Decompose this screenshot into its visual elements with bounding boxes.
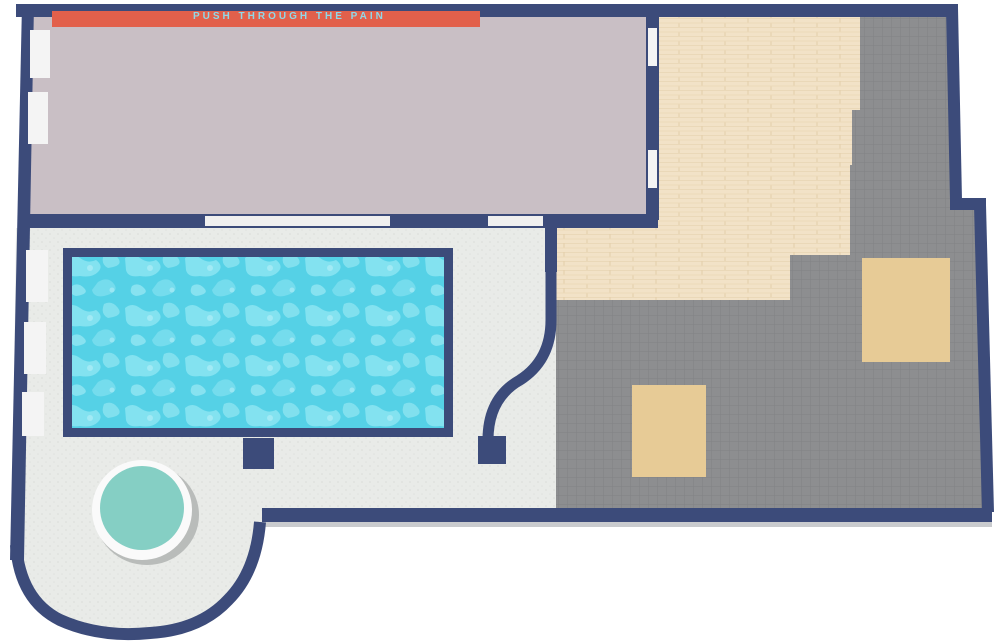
svg-text:PUSH THROUGH THE PAIN: PUSH THROUGH THE PAIN: [193, 11, 386, 22]
